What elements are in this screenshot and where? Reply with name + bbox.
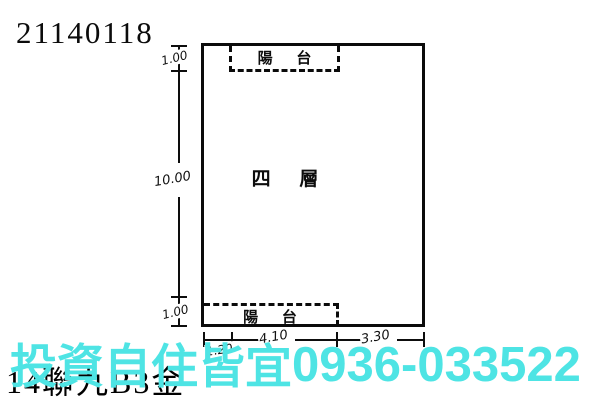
balcony-bottom-label: 陽 台 — [243, 306, 297, 327]
floor-name-label: 四 層 — [230, 164, 340, 191]
dim-tick — [171, 45, 187, 47]
watermark: 投資自住皆宜0936-033522 — [10, 341, 581, 390]
dim-label-left-middle: 10.00 — [152, 169, 193, 191]
balcony-bottom: 陽 台 — [204, 303, 339, 326]
watermark-slogan: 投資自住皆宜 — [10, 343, 292, 390]
dim-label-left-bottom: 1.00 — [160, 302, 191, 323]
dim-label-left-top: 1.00 — [159, 48, 190, 69]
document-id: 21140118 — [16, 15, 154, 51]
watermark-phone-number: 0936-033522 — [292, 341, 581, 390]
scanned-floorplan-sheet: 21140118 陽 台 陽 台 四 層 1.00 10.00 1.00 1.2… — [0, 0, 602, 401]
balcony-top-label: 陽 台 — [258, 47, 312, 68]
dim-tick — [171, 70, 187, 72]
dim-tick — [171, 296, 187, 298]
balcony-top: 陽 台 — [229, 46, 340, 72]
dim-tick — [171, 325, 187, 327]
